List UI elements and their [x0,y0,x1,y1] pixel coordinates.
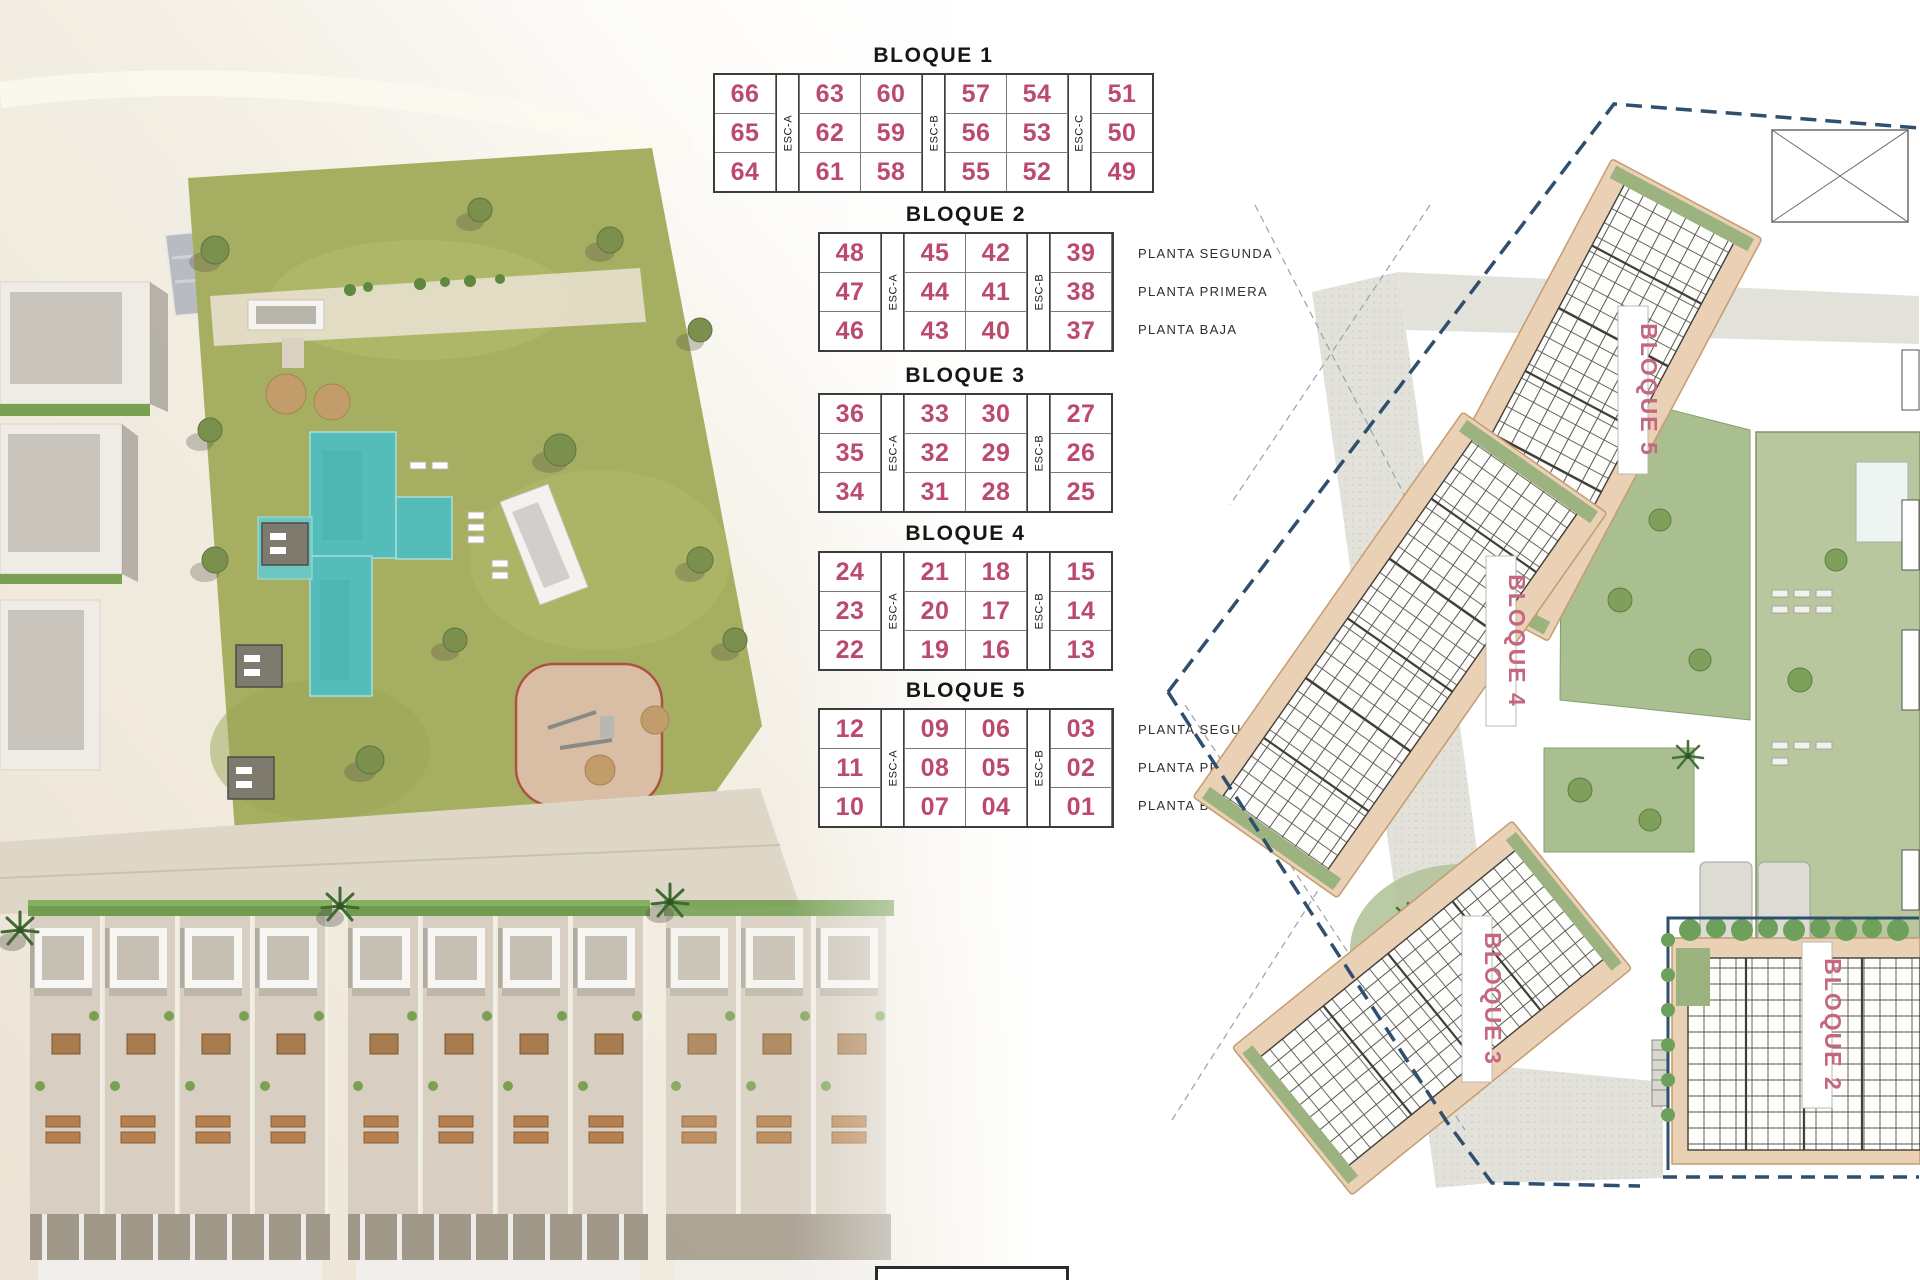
stair-column: ESC-A [881,710,905,826]
stair-label: ESC-A [887,435,899,472]
unit-number: 18 [966,553,1027,592]
unit-number: 21 [905,553,966,592]
unit-number: 11 [820,749,881,788]
building-bloque-2 [1652,918,1920,1164]
unit-number: 61 [800,153,861,191]
unit-number: 58 [861,153,922,191]
unit-number: 66 [715,75,776,114]
unit-number: 29 [966,434,1027,473]
unit-number: 65 [715,114,776,153]
unit-number: 16 [966,631,1027,669]
unit-number: 59 [861,114,922,153]
hedge-row [1679,918,1909,941]
unit-number: 60 [861,75,922,114]
pavilion [248,300,324,330]
ramp-structure [1772,130,1908,222]
unit-number: 04 [966,788,1027,826]
unit-number: 28 [966,473,1027,511]
unit-number: 62 [800,114,861,153]
unit-number: 23 [820,592,881,631]
bloque-4-label: BLOQUE 4 [1504,574,1530,708]
unit-number: 46 [820,312,881,350]
unit-number: 64 [715,153,776,191]
unit-number: 06 [966,710,1027,749]
unit-number: 48 [820,234,881,273]
unit-number: 47 [820,273,881,312]
unit-number: 35 [820,434,881,473]
stair-column: ESC-A [881,395,905,511]
stair-label: ESC-A [887,274,899,311]
unit-number: 55 [946,153,1007,191]
stair-column: ESC-B [922,75,946,191]
steps [282,338,304,368]
unit-number: 08 [905,749,966,788]
unit-number: 19 [905,631,966,669]
villa-cluster [0,884,894,1280]
unit-number: 34 [820,473,881,511]
unit-number: 41 [966,273,1027,312]
unit-number: 05 [966,749,1027,788]
unit-number: 07 [905,788,966,826]
unit-number: 63 [800,75,861,114]
stair-label: ESC-B [928,115,940,152]
bloque-2-label: BLOQUE 2 [1820,958,1846,1092]
unit-number: 32 [905,434,966,473]
bloque-5-label: BLOQUE 5 [1636,323,1662,457]
unit-number: 20 [905,592,966,631]
unit-number: 24 [820,553,881,592]
unit-number: 33 [905,395,966,434]
stair-column: ESC-A [881,234,905,350]
stair-label: ESC-A [887,593,899,630]
unit-number: 45 [905,234,966,273]
unit-number: 10 [820,788,881,826]
stair-column: ESC-A [881,553,905,669]
unit-number: 42 [966,234,1027,273]
unit-number: 31 [905,473,966,511]
stair-column: ESC-A [776,75,800,191]
unit-number: 30 [966,395,1027,434]
unit-number: 40 [966,312,1027,350]
unit-number: 56 [946,114,1007,153]
unit-number: 12 [820,710,881,749]
playground [516,664,662,806]
unit-number: 36 [820,395,881,434]
brochure-sheet: BLOQUE 1666564ESC-A636261605958ESC-B5756… [0,0,1920,1280]
unit-number: 57 [946,75,1007,114]
unit-number: 09 [905,710,966,749]
bloque-3-label: BLOQUE 3 [1480,932,1506,1066]
unit-number: 22 [820,631,881,669]
site-plan: BLOQUE 5 BLOQUE 4 BLOQUE 3 BLOQUE 2 [1040,0,1920,1280]
stair-label: ESC-A [782,115,794,152]
unit-number: 44 [905,273,966,312]
unit-number: 43 [905,312,966,350]
unit-number: 17 [966,592,1027,631]
legend-box [875,1266,1069,1280]
stair-label: ESC-A [887,750,899,787]
